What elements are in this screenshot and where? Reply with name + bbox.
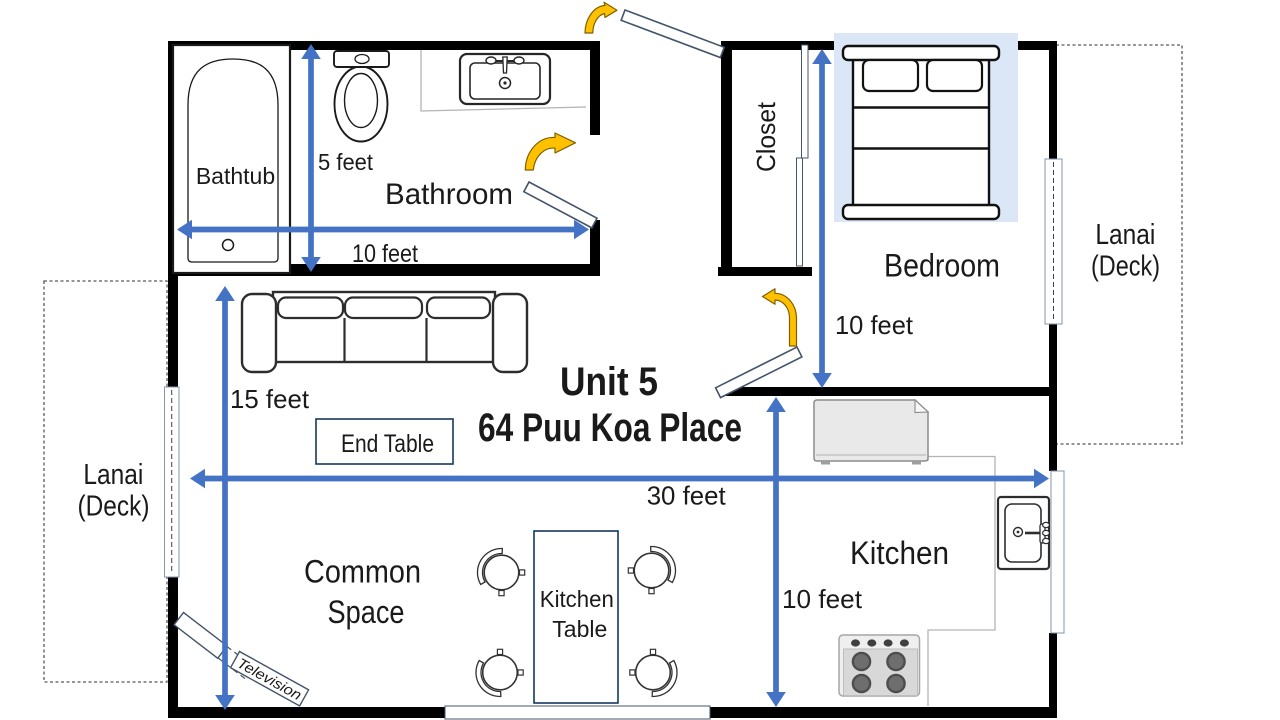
svg-text:Unit 5: Unit 5 xyxy=(560,360,658,404)
svg-text:Table: Table xyxy=(552,616,607,642)
svg-text:64 Puu Koa Place: 64 Puu Koa Place xyxy=(478,406,742,450)
svg-text:Common: Common xyxy=(304,554,421,590)
svg-text:Bathtub: Bathtub xyxy=(196,163,275,189)
svg-text:10 feet: 10 feet xyxy=(352,240,418,268)
svg-text:Space: Space xyxy=(328,594,405,630)
svg-text:(Deck): (Deck) xyxy=(78,491,150,523)
svg-text:Kitchen: Kitchen xyxy=(850,535,949,571)
svg-text:Kitchen: Kitchen xyxy=(540,586,614,612)
svg-text:Bathroom: Bathroom xyxy=(385,178,513,211)
svg-text:Lanai: Lanai xyxy=(83,459,143,491)
svg-text:Bedroom: Bedroom xyxy=(884,247,1000,283)
svg-text:(Deck): (Deck) xyxy=(1091,251,1160,283)
svg-text:5 feet: 5 feet xyxy=(318,149,373,175)
svg-text:10 feet: 10 feet xyxy=(782,584,863,614)
svg-text:10 feet: 10 feet xyxy=(835,310,914,340)
svg-text:Lanai: Lanai xyxy=(1095,219,1155,251)
svg-text:30 feet: 30 feet xyxy=(647,481,727,511)
svg-text:15 feet: 15 feet xyxy=(230,384,310,414)
svg-text:End Table: End Table xyxy=(341,430,434,458)
svg-text:Closet: Closet xyxy=(751,101,781,172)
